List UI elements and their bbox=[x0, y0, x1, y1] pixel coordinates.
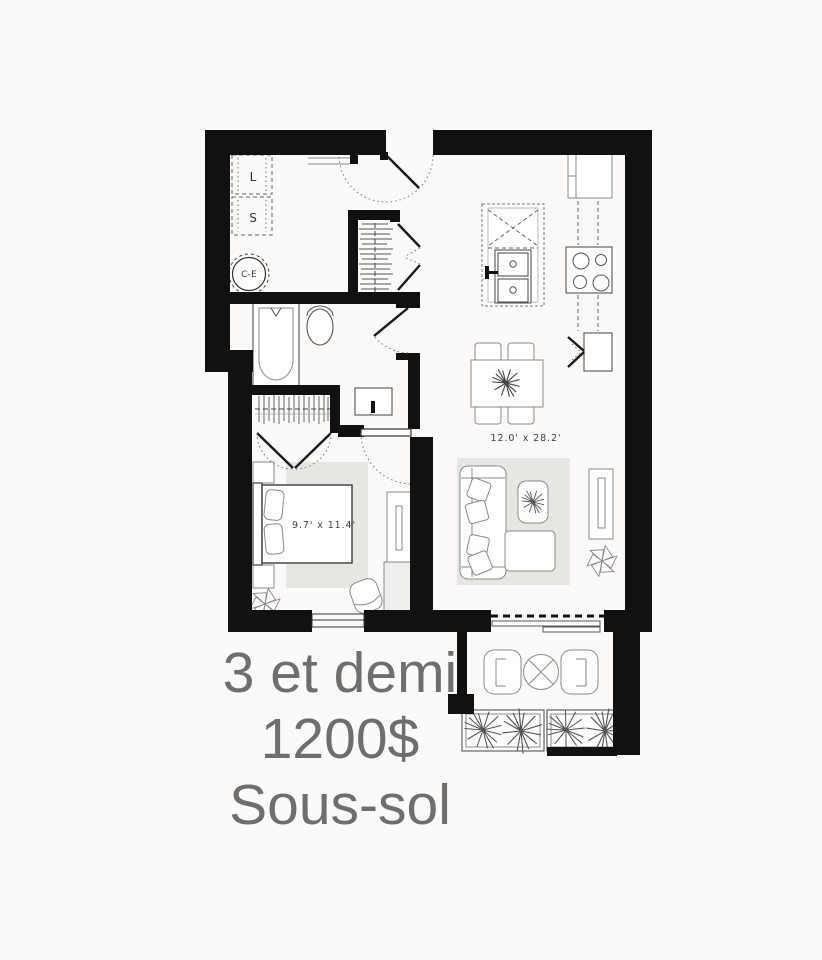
kitchen bbox=[482, 154, 612, 371]
bedroom-living-wall bbox=[410, 437, 433, 612]
balcony-chair-right bbox=[561, 650, 598, 694]
cooktop-icon bbox=[566, 247, 612, 293]
bedroom-top-wall bbox=[338, 425, 364, 437]
bathroom-top-wall bbox=[228, 292, 396, 304]
plant-icon bbox=[587, 545, 617, 578]
bedroom-dimension: 9.7' x 11.4' bbox=[292, 520, 356, 531]
bathroom-door-leaf bbox=[374, 308, 408, 336]
balcony-bottom-wall bbox=[547, 747, 617, 756]
bifold-door-swing bbox=[404, 248, 420, 264]
entry-closet-left-wall bbox=[348, 210, 358, 302]
pillow bbox=[264, 523, 285, 554]
closet-hangers-icon bbox=[359, 219, 393, 289]
bedroom-bottom-wall bbox=[228, 610, 312, 632]
caption-price: 1200$ bbox=[140, 706, 540, 772]
living-room bbox=[460, 466, 617, 579]
laundry-opening-header bbox=[308, 158, 350, 164]
nightstand bbox=[253, 462, 274, 483]
hall-corner-block bbox=[396, 292, 420, 308]
bedroom-door-leaf bbox=[361, 429, 411, 436]
opening-jamb bbox=[350, 152, 358, 164]
balcony-right-wall bbox=[613, 632, 640, 755]
bathtub-icon bbox=[253, 302, 299, 388]
caption-unit-type: 3 et demi bbox=[140, 640, 540, 706]
hall-closet bbox=[255, 394, 333, 424]
nightstand bbox=[253, 565, 274, 588]
living-bottom-wall-left bbox=[433, 610, 491, 632]
bedroom-door-swing bbox=[361, 433, 412, 484]
dining-chair bbox=[475, 406, 501, 424]
toilet-icon bbox=[307, 309, 333, 345]
top-wall-left bbox=[205, 130, 386, 155]
corner-pantry bbox=[584, 333, 612, 371]
vanity-faucet bbox=[371, 401, 375, 413]
dryer-label: S bbox=[249, 211, 257, 225]
listing-image: L S C-E 12.0' x 28.2' 9.7' x 11.4' 3 et … bbox=[0, 0, 822, 960]
dresser bbox=[384, 562, 412, 615]
bedroom-bottom-wall-right bbox=[364, 610, 433, 632]
throw-pillow bbox=[465, 500, 489, 524]
pillow bbox=[263, 489, 284, 521]
tv-icon bbox=[598, 478, 605, 528]
dining-area bbox=[471, 343, 543, 424]
entry-door-jamb bbox=[380, 152, 388, 160]
faucet-icon bbox=[485, 266, 489, 279]
top-wall-right bbox=[433, 130, 652, 155]
patio-sliding-panel bbox=[543, 627, 600, 632]
right-wall bbox=[625, 130, 652, 632]
dining-chair bbox=[508, 343, 534, 361]
caption-floor-level: Sous-sol bbox=[140, 772, 540, 838]
entry-closet-bifold-doors bbox=[398, 224, 420, 290]
living-dining-dimension: 12.0' x 28.2' bbox=[491, 433, 562, 444]
closet-top-wall bbox=[252, 385, 338, 395]
washer-label: L bbox=[250, 170, 257, 184]
left-wall-upper bbox=[205, 130, 230, 372]
vanity-wall-nub bbox=[396, 353, 408, 360]
patio-sliding-door bbox=[492, 621, 600, 626]
bedroom-window bbox=[312, 614, 364, 627]
dining-chair bbox=[475, 343, 501, 361]
faucet-spout bbox=[489, 271, 498, 274]
living-bottom-wall-right bbox=[604, 610, 625, 632]
closet-jamb bbox=[390, 212, 400, 222]
sofa-chaise bbox=[505, 531, 555, 571]
water-heater-label: C-E bbox=[241, 270, 257, 280]
listing-caption: 3 et demi 1200$ Sous-sol bbox=[140, 640, 540, 838]
hall-wall bbox=[408, 353, 420, 429]
entry-closet bbox=[359, 215, 393, 294]
entry-door-leaf bbox=[387, 156, 419, 188]
dresser-mirror bbox=[396, 506, 402, 550]
sink-basin-top bbox=[498, 253, 528, 276]
left-wall-lower bbox=[228, 352, 252, 632]
bathroom-door-swing bbox=[374, 336, 408, 353]
sink-basin-bottom bbox=[498, 279, 528, 302]
pantry-doors bbox=[568, 337, 584, 367]
closet-hangers-icon bbox=[259, 394, 328, 424]
dining-chair bbox=[508, 406, 534, 424]
headboard bbox=[253, 483, 262, 565]
bedroom bbox=[250, 462, 412, 620]
